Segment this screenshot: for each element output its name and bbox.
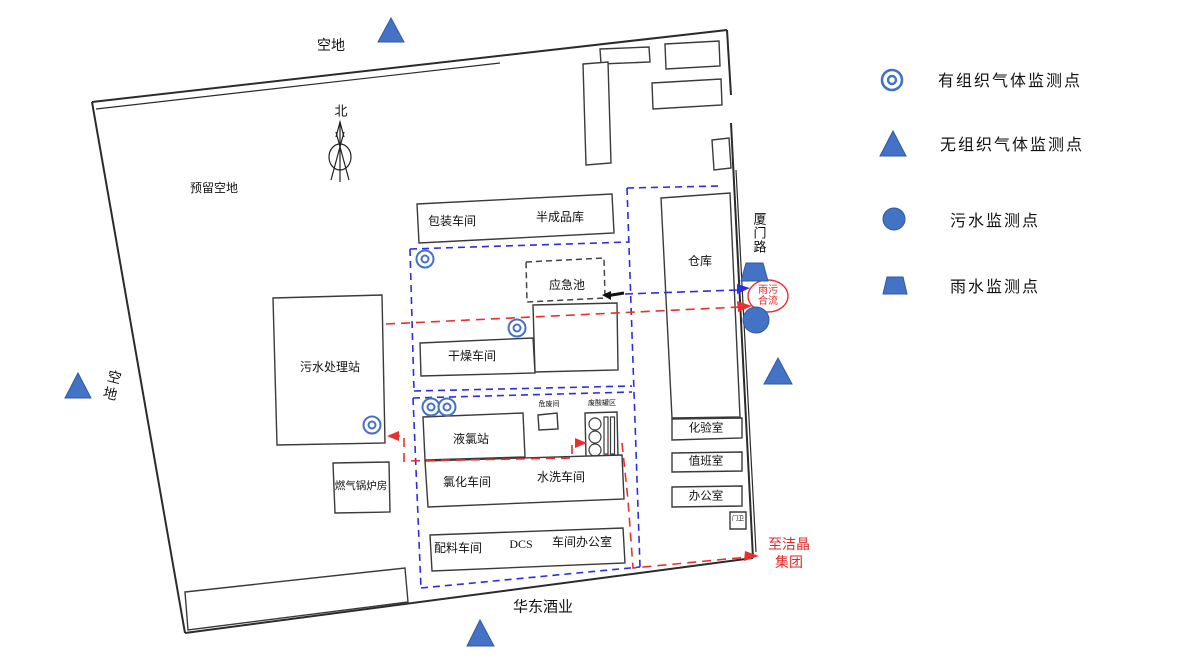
confluence-label: 雨污 合流 [758, 285, 778, 307]
building-label-gatehouse: 门卫 [732, 517, 744, 524]
building-label-chlorine-station: 液氯站 [453, 433, 489, 447]
site-plan-drawing [0, 0, 1189, 667]
to-jiejing-label: 至洁晶 集团 [768, 537, 810, 573]
building-label-dcs: DCS [509, 538, 532, 552]
fugitive-gas-point-icon [878, 127, 908, 159]
sewage-point-icon [743, 307, 769, 333]
legend-label: 无组织气体监测点 [940, 131, 1084, 155]
north-compass-icon [329, 122, 351, 182]
building-label-batching: 配料车间 [434, 542, 482, 556]
building-label-emergency-pool: 应急池 [549, 279, 585, 293]
building-label-packaging: 包装车间 [428, 215, 476, 229]
rainwater-point-icon [880, 270, 910, 300]
site-plan-canvas: 空地 北 预留空地 空地 厦门路 华东酒业 包装车间 半成品库 应急池 干燥车间… [0, 0, 1189, 667]
organized-gas-point-icon [509, 320, 526, 337]
north-label: 北 [334, 105, 347, 120]
organized-gas-point-icon [417, 251, 434, 268]
building-label-duty-room: 值班室 [689, 455, 724, 468]
fugitive-gas-point-icon [378, 18, 404, 42]
fugitive-gas-point-icon [764, 358, 792, 384]
organized-gas-point-icon [423, 399, 440, 416]
building-label-chlorination: 氯化车间 [443, 476, 491, 490]
building-hazwaste-room [538, 413, 558, 430]
building-label-office: 办公室 [689, 490, 724, 503]
legend-item-rainwater: 雨水监测点 [880, 270, 1040, 300]
building-label-sewage-station: 污水处理站 [300, 361, 360, 375]
rainwater-point-icon [741, 263, 768, 281]
building-label-boiler-room: 燃气锅炉房 [335, 481, 388, 493]
legend-label: 有组织气体监测点 [938, 67, 1082, 91]
building-label-washing: 水洗车间 [537, 471, 585, 485]
building-label-workshop-office: 车间办公室 [552, 536, 612, 550]
to-jiejing-label-line1: 至洁晶 [768, 537, 810, 555]
legend-item-sewage: 污水监测点 [880, 204, 1040, 234]
legend-item-fugitive-gas: 无组织气体监测点 [878, 127, 1084, 159]
legend-label: 污水监测点 [950, 207, 1040, 231]
open-space-top-label: 空地 [317, 39, 345, 55]
building-label-warehouse: 仓库 [688, 255, 712, 269]
site-boundary [92, 30, 756, 633]
building-label-acid-tank-area: 废酸罐区 [588, 399, 616, 407]
organized-gas-point-icon [439, 399, 456, 416]
confluence-label-line2: 合流 [758, 296, 778, 307]
legend-item-organized-gas: 有组织气体监测点 [878, 63, 1082, 95]
fugitive-gas-point-icon [65, 373, 91, 398]
building-label-lab: 化验室 [689, 422, 724, 435]
reserved-space-label: 预留空地 [190, 182, 238, 196]
to-jiejing-label-line2: 集团 [768, 555, 810, 573]
building-label-drying: 干燥车间 [448, 350, 496, 364]
neighbor-south-label: 华东酒业 [513, 599, 573, 616]
building-label-semi-finished: 半成品库 [536, 211, 584, 225]
road-label: 厦门路 [751, 212, 766, 254]
sewage-point-icon [880, 204, 910, 234]
building-warehouse [661, 193, 740, 418]
building-label-hazwaste-room: 危废间 [539, 400, 560, 408]
confluence-label-line1: 雨污 [758, 285, 778, 296]
organized-gas-point-icon [364, 417, 381, 434]
legend-label: 雨水监测点 [950, 273, 1040, 297]
organized-gas-point-icon [878, 63, 908, 95]
fugitive-gas-point-icon [467, 620, 494, 646]
